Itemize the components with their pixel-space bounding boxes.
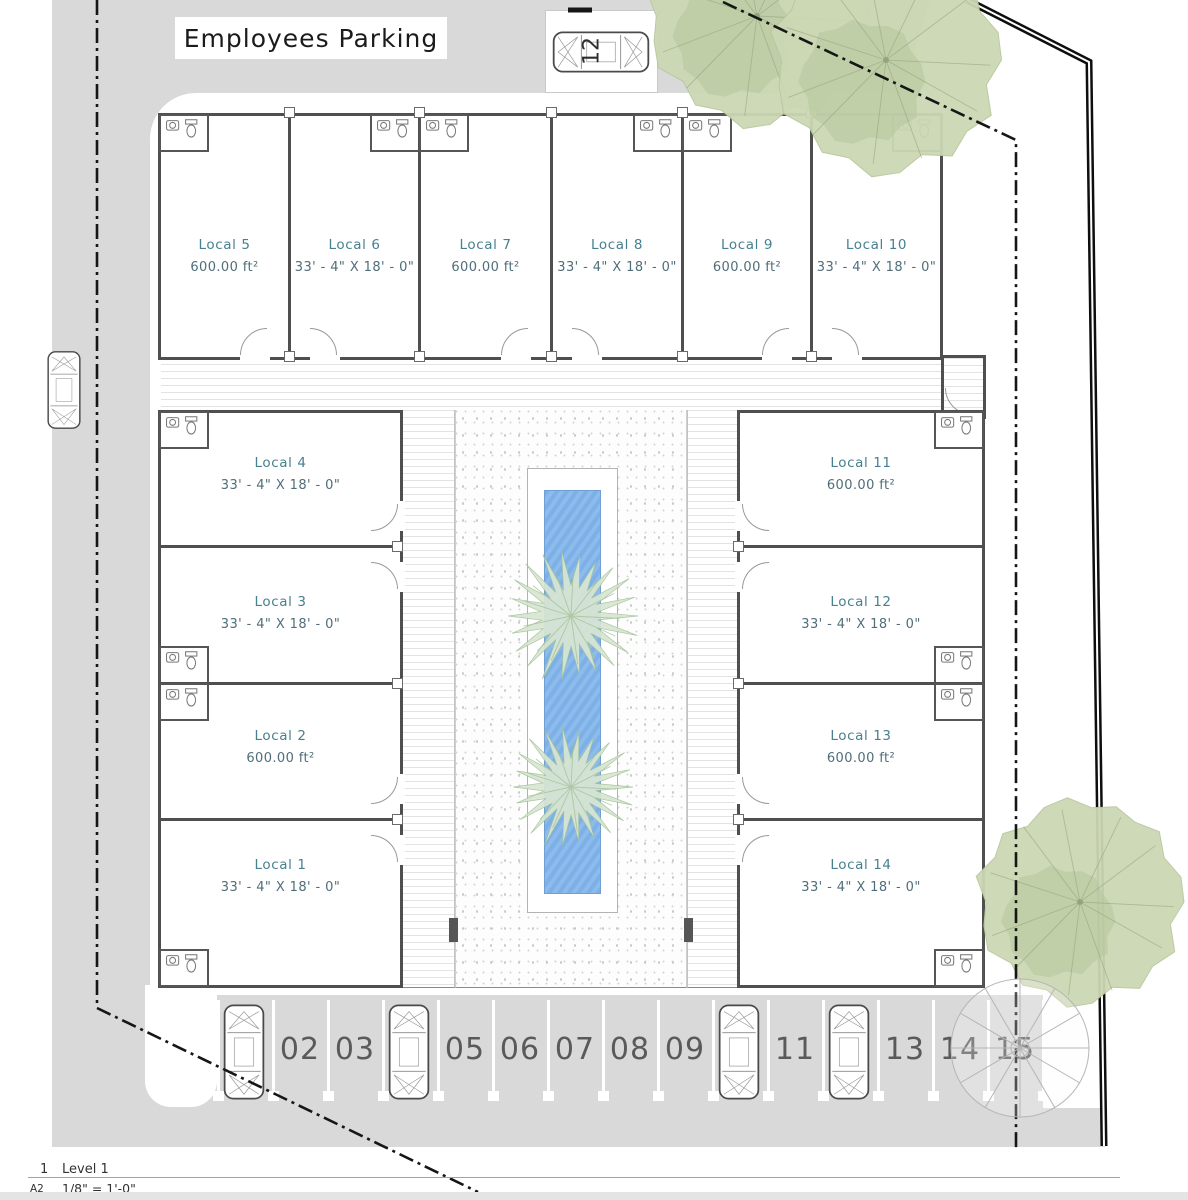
left-road [52, 0, 150, 1147]
unit-label: Local 8 33' - 4" X 18' - 0" [553, 237, 681, 275]
bathroom [934, 646, 984, 684]
unit-local-14: Local 14 33' - 4" X 18' - 0" [737, 818, 985, 988]
door-arc [742, 777, 769, 804]
unit-local-12: Local 12 33' - 4" X 18' - 0" [737, 545, 985, 685]
wall-joint [733, 814, 744, 825]
door-opening [762, 355, 792, 362]
employees-parking-title: Employees Parking [175, 17, 447, 59]
bathroom [159, 646, 209, 684]
car-icon [222, 1002, 266, 1102]
unit-size: 33' - 4" X 18' - 0" [740, 880, 982, 895]
parking-space-number: 15 [990, 1032, 1040, 1067]
unit-size: 33' - 4" X 18' - 0" [813, 260, 940, 275]
wall-joint [392, 541, 403, 552]
sheet-edge [0, 1192, 1188, 1200]
door-arc [310, 328, 337, 355]
bathroom [419, 114, 469, 152]
parking-bay-ends [213, 1091, 1051, 1101]
door-arc [572, 328, 599, 355]
toilet-sink-icon [938, 687, 978, 713]
unit-local-9: Local 9 600.00 ft² [681, 113, 813, 360]
unit-label: Local 2 600.00 ft² [161, 728, 400, 766]
unit-size: 600.00 ft² [740, 751, 982, 766]
car-icon [46, 337, 82, 443]
bathroom [370, 114, 420, 152]
unit-name: Local 5 [161, 237, 288, 253]
parking-space-number: 14 [935, 1032, 985, 1067]
parking-space-number: 03 [330, 1032, 380, 1067]
door-arc [832, 328, 859, 355]
unit-local-6: Local 6 33' - 4" X 18' - 0" [288, 113, 421, 360]
unit-label: Local 4 33' - 4" X 18' - 0" [161, 455, 400, 493]
unit-label: Local 12 33' - 4" X 18' - 0" [740, 594, 982, 632]
toilet-sink-icon [163, 415, 203, 441]
unit-local-8: Local 8 33' - 4" X 18' - 0" [550, 113, 684, 360]
bathroom [934, 683, 984, 721]
unit-name: Local 9 [684, 237, 810, 253]
toilet-sink-icon [163, 118, 203, 144]
toilet-sink-icon [938, 415, 978, 441]
unit-label: Local 11 600.00 ft² [740, 455, 982, 493]
parking-space-number: 13 [880, 1032, 930, 1067]
bathroom [934, 411, 984, 449]
door-opening [735, 774, 742, 804]
walkway-left [403, 410, 455, 988]
unit-name: Local 11 [740, 455, 982, 471]
wall-joint [677, 107, 688, 118]
unit-label: Local 1 33' - 4" X 18' - 0" [161, 857, 400, 895]
gate-post [684, 918, 693, 942]
unit-size: 33' - 4" X 18' - 0" [161, 617, 400, 632]
car-icon [387, 1002, 431, 1102]
toilet-sink-icon [163, 687, 203, 713]
parking-space-number: 06 [495, 1032, 545, 1067]
reserved-space-label: 12 [580, 37, 605, 65]
wall-joint [677, 351, 688, 362]
door-opening [398, 562, 405, 592]
unit-name: Local 1 [161, 857, 400, 873]
unit-size: 600.00 ft² [161, 260, 288, 275]
view-number: 1 [40, 1162, 48, 1177]
unit-name: Local 8 [553, 237, 681, 253]
unit-size: 33' - 4" X 18' - 0" [740, 617, 982, 632]
wall-joint [284, 107, 295, 118]
unit-local-13: Local 13 600.00 ft² [737, 682, 985, 821]
parking-space-number: 05 [440, 1032, 490, 1067]
wall-joint [414, 107, 425, 118]
unit-size: 33' - 4" X 18' - 0" [291, 260, 418, 275]
unit-label: Local 13 600.00 ft² [740, 728, 982, 766]
walkway-right [687, 410, 737, 988]
unit-name: Local 14 [740, 857, 982, 873]
unit-size: 33' - 4" X 18' - 0" [161, 880, 400, 895]
unit-size: 33' - 4" X 18' - 0" [161, 478, 400, 493]
bathroom [934, 949, 984, 987]
wall-joint [546, 107, 557, 118]
toilet-sink-icon [686, 118, 726, 144]
car-icon [717, 1002, 761, 1102]
unit-label: Local 10 33' - 4" X 18' - 0" [813, 237, 940, 275]
wall-joint [392, 814, 403, 825]
toilet-sink-icon [163, 650, 203, 676]
road-extension [1043, 1108, 1105, 1147]
bathroom [159, 683, 209, 721]
unit-size: 600.00 ft² [421, 260, 550, 275]
unit-size: 600.00 ft² [684, 260, 810, 275]
title-rule [28, 1177, 1120, 1178]
unit-label: Local 5 600.00 ft² [161, 237, 288, 275]
bathroom [159, 114, 209, 152]
unit-local-7: Local 7 600.00 ft² [418, 113, 553, 360]
unit-name: Local 6 [291, 237, 418, 253]
unit-name: Local 13 [740, 728, 982, 744]
toilet-sink-icon [637, 118, 677, 144]
toilet-sink-icon [896, 118, 936, 144]
unit-local-5: Local 5 600.00 ft² [158, 113, 291, 360]
wall-joint [806, 351, 817, 362]
wall-joint [733, 541, 744, 552]
unit-local-1: Local 1 33' - 4" X 18' - 0" [158, 818, 403, 988]
bathroom [159, 411, 209, 449]
bathroom [159, 949, 209, 987]
wall-joint [806, 107, 817, 118]
parking-space-number: 11 [770, 1032, 820, 1067]
parking-space-number: 08 [605, 1032, 655, 1067]
wall-joint [546, 351, 557, 362]
unit-name: Local 2 [161, 728, 400, 744]
door-arc [240, 328, 267, 355]
unit-label: Local 6 33' - 4" X 18' - 0" [291, 237, 418, 275]
door-opening [310, 355, 340, 362]
wall-joint [392, 678, 403, 689]
door-opening [735, 501, 742, 531]
unit-name: Local 4 [161, 455, 400, 471]
toilet-sink-icon [938, 953, 978, 979]
unit-name: Local 12 [740, 594, 982, 610]
door-opening [398, 501, 405, 531]
parking-space-number: 07 [550, 1032, 600, 1067]
unit-label: Local 14 33' - 4" X 18' - 0" [740, 857, 982, 895]
unit-local-2: Local 2 600.00 ft² [158, 682, 403, 821]
view-name: Level 1 [62, 1162, 109, 1177]
unit-label: Local 9 600.00 ft² [684, 237, 810, 275]
toilet-sink-icon [374, 118, 414, 144]
unit-size: 600.00 ft² [740, 478, 982, 493]
door-opening [240, 355, 270, 362]
toilet-sink-icon [163, 953, 203, 979]
parking-space-number: 02 [275, 1032, 325, 1067]
unit-name: Local 7 [421, 237, 550, 253]
unit-label: Local 7 600.00 ft² [421, 237, 550, 275]
driveway [145, 985, 217, 1107]
bathroom [682, 114, 732, 152]
bathroom [892, 114, 942, 152]
unit-name: Local 3 [161, 594, 400, 610]
door-arc [501, 328, 528, 355]
door-arc [742, 504, 769, 531]
door-opening [832, 355, 862, 362]
door-arc [371, 504, 398, 531]
unit-local-11: Local 11 600.00 ft² [737, 410, 985, 548]
unit-local-3: Local 3 33' - 4" X 18' - 0" [158, 545, 403, 685]
pool [544, 490, 601, 894]
walkway-corridor [161, 357, 943, 411]
bathroom [633, 114, 683, 152]
wall-joint [733, 678, 744, 689]
door-arc [371, 562, 398, 589]
floor-plan-canvas: Local 5 600.00 ft² Local 6 33' - 4" X 18… [0, 0, 1188, 1200]
door-opening [572, 355, 602, 362]
car-icon [827, 1002, 871, 1102]
unit-label: Local 3 33' - 4" X 18' - 0" [161, 594, 400, 632]
parking-space-number: 09 [660, 1032, 710, 1067]
toilet-sink-icon [938, 650, 978, 676]
unit-size: 600.00 ft² [161, 751, 400, 766]
unit-size: 33' - 4" X 18' - 0" [553, 260, 681, 275]
door-opening [398, 774, 405, 804]
door-arc [371, 777, 398, 804]
door-opening [735, 562, 742, 592]
unit-name: Local 10 [813, 237, 940, 253]
unit-local-10: Local 10 33' - 4" X 18' - 0" [810, 113, 943, 360]
wall-joint [414, 351, 425, 362]
door-arc [742, 562, 769, 589]
gate-post [449, 918, 458, 942]
door-opening [501, 355, 531, 362]
door-arc [762, 328, 789, 355]
wall-joint [284, 351, 295, 362]
unit-local-4: Local 4 33' - 4" X 18' - 0" [158, 410, 403, 548]
toilet-sink-icon [423, 118, 463, 144]
